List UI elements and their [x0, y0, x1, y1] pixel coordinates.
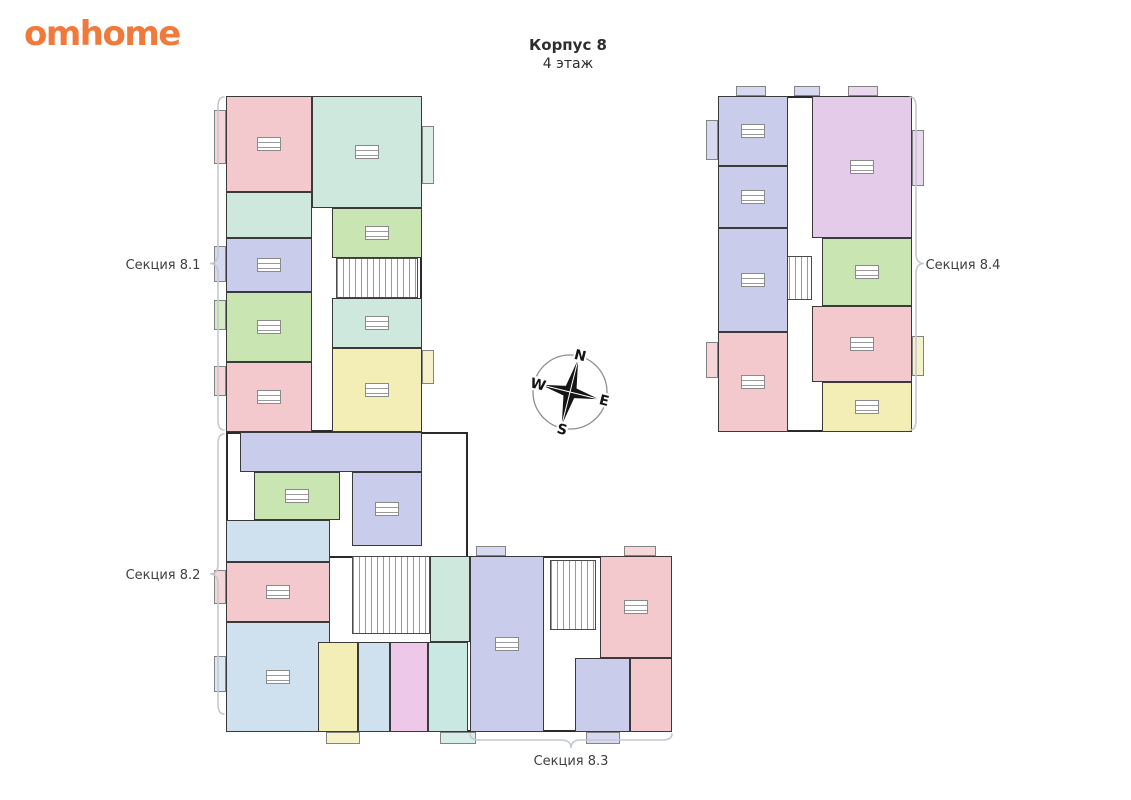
- compass-east-label: E: [597, 392, 610, 410]
- section-label-8-3: Секция 8.3: [516, 754, 626, 769]
- apartment-info-label: [495, 637, 519, 651]
- apartment-unit[interactable]: [318, 642, 358, 732]
- balcony: [422, 126, 434, 184]
- balcony: [586, 732, 620, 744]
- apartment-unit[interactable]: [226, 520, 330, 562]
- balcony: [706, 120, 718, 160]
- apartment-info-label: [741, 124, 765, 138]
- balcony: [214, 300, 226, 330]
- balcony: [214, 366, 226, 396]
- floor-plan-page: omhome Корпус 8 4 этаж Секция 8.1 Секция…: [0, 0, 1131, 800]
- compass-west-label: W: [529, 375, 548, 394]
- section-brace: [470, 734, 672, 748]
- apartment-unit[interactable]: [630, 658, 672, 732]
- balcony: [476, 546, 506, 556]
- balcony: [706, 342, 718, 378]
- apartment-info-label: [266, 670, 290, 684]
- apartment-info-label: [741, 375, 765, 389]
- apartment-info-label: [266, 585, 290, 599]
- apartment-info-label: [855, 265, 879, 279]
- apartment-info-label: [257, 320, 281, 334]
- apartment-info-label: [355, 145, 379, 159]
- omhome-logo[interactable]: omhome: [24, 14, 180, 54]
- apartment-unit[interactable]: [575, 658, 630, 732]
- apartment-info-label: [850, 337, 874, 351]
- apartment-info-label: [257, 390, 281, 404]
- apartment-info-label: [365, 316, 389, 330]
- apartment-info-label: [624, 600, 648, 614]
- apartment-info-label: [855, 400, 879, 414]
- compass-north-label: N: [572, 347, 587, 365]
- staircase: [352, 556, 430, 634]
- apartment-info-label: [365, 383, 389, 397]
- apartment-info-label: [257, 137, 281, 151]
- balcony: [214, 656, 226, 692]
- balcony: [440, 732, 476, 744]
- balcony: [912, 336, 924, 376]
- balcony: [326, 732, 360, 744]
- balcony: [912, 130, 924, 186]
- apartment-unit[interactable]: [390, 642, 428, 732]
- page-title: Корпус 8 4 этаж: [468, 36, 668, 72]
- balcony: [214, 110, 226, 164]
- staircase: [336, 258, 418, 298]
- apartment-info-label: [365, 226, 389, 240]
- apartment-unit[interactable]: [428, 642, 468, 732]
- section-label-8-2: Секция 8.2: [108, 568, 218, 583]
- apartment-unit[interactable]: [358, 642, 390, 732]
- building-title: Корпус 8: [468, 36, 668, 54]
- apartment-info-label: [285, 489, 309, 503]
- apartment-unit[interactable]: [430, 556, 470, 642]
- balcony: [422, 350, 434, 384]
- apartment-info-label: [741, 190, 765, 204]
- compass-rose: N E S W: [518, 342, 628, 452]
- balcony: [624, 546, 656, 556]
- staircase: [550, 560, 596, 630]
- apartment-info-label: [850, 160, 874, 174]
- section-label-8-4: Секция 8.4: [908, 258, 1018, 273]
- balcony: [848, 86, 878, 96]
- apartment-unit[interactable]: [240, 432, 422, 472]
- floor-subtitle: 4 этаж: [468, 56, 668, 72]
- section-label-8-1: Секция 8.1: [108, 258, 218, 273]
- apartment-info-label: [257, 258, 281, 272]
- balcony: [736, 86, 766, 96]
- apartment-info-label: [375, 502, 399, 516]
- balcony: [794, 86, 820, 96]
- apartment-info-label: [741, 273, 765, 287]
- compass-south-label: S: [555, 421, 569, 439]
- apartment-unit[interactable]: [226, 192, 312, 238]
